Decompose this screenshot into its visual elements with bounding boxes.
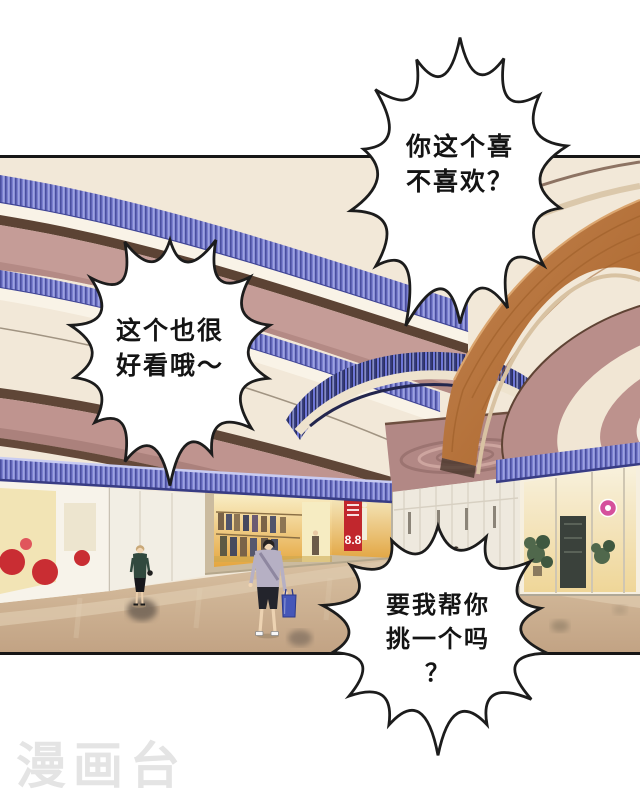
sale-sign-text: 8.8 (345, 533, 362, 547)
corridor-wall (392, 476, 520, 595)
storefront-right (520, 460, 640, 595)
comic-page: 8.8 (0, 0, 640, 800)
mall-scene: 8.8 (0, 158, 640, 652)
sale-sign: 8.8 (344, 499, 362, 551)
watermark-manhuatai: 漫画台 (16, 726, 187, 798)
storefront-left (0, 480, 110, 603)
door-panels (110, 488, 205, 591)
comic-panel: 8.8 (0, 155, 640, 655)
